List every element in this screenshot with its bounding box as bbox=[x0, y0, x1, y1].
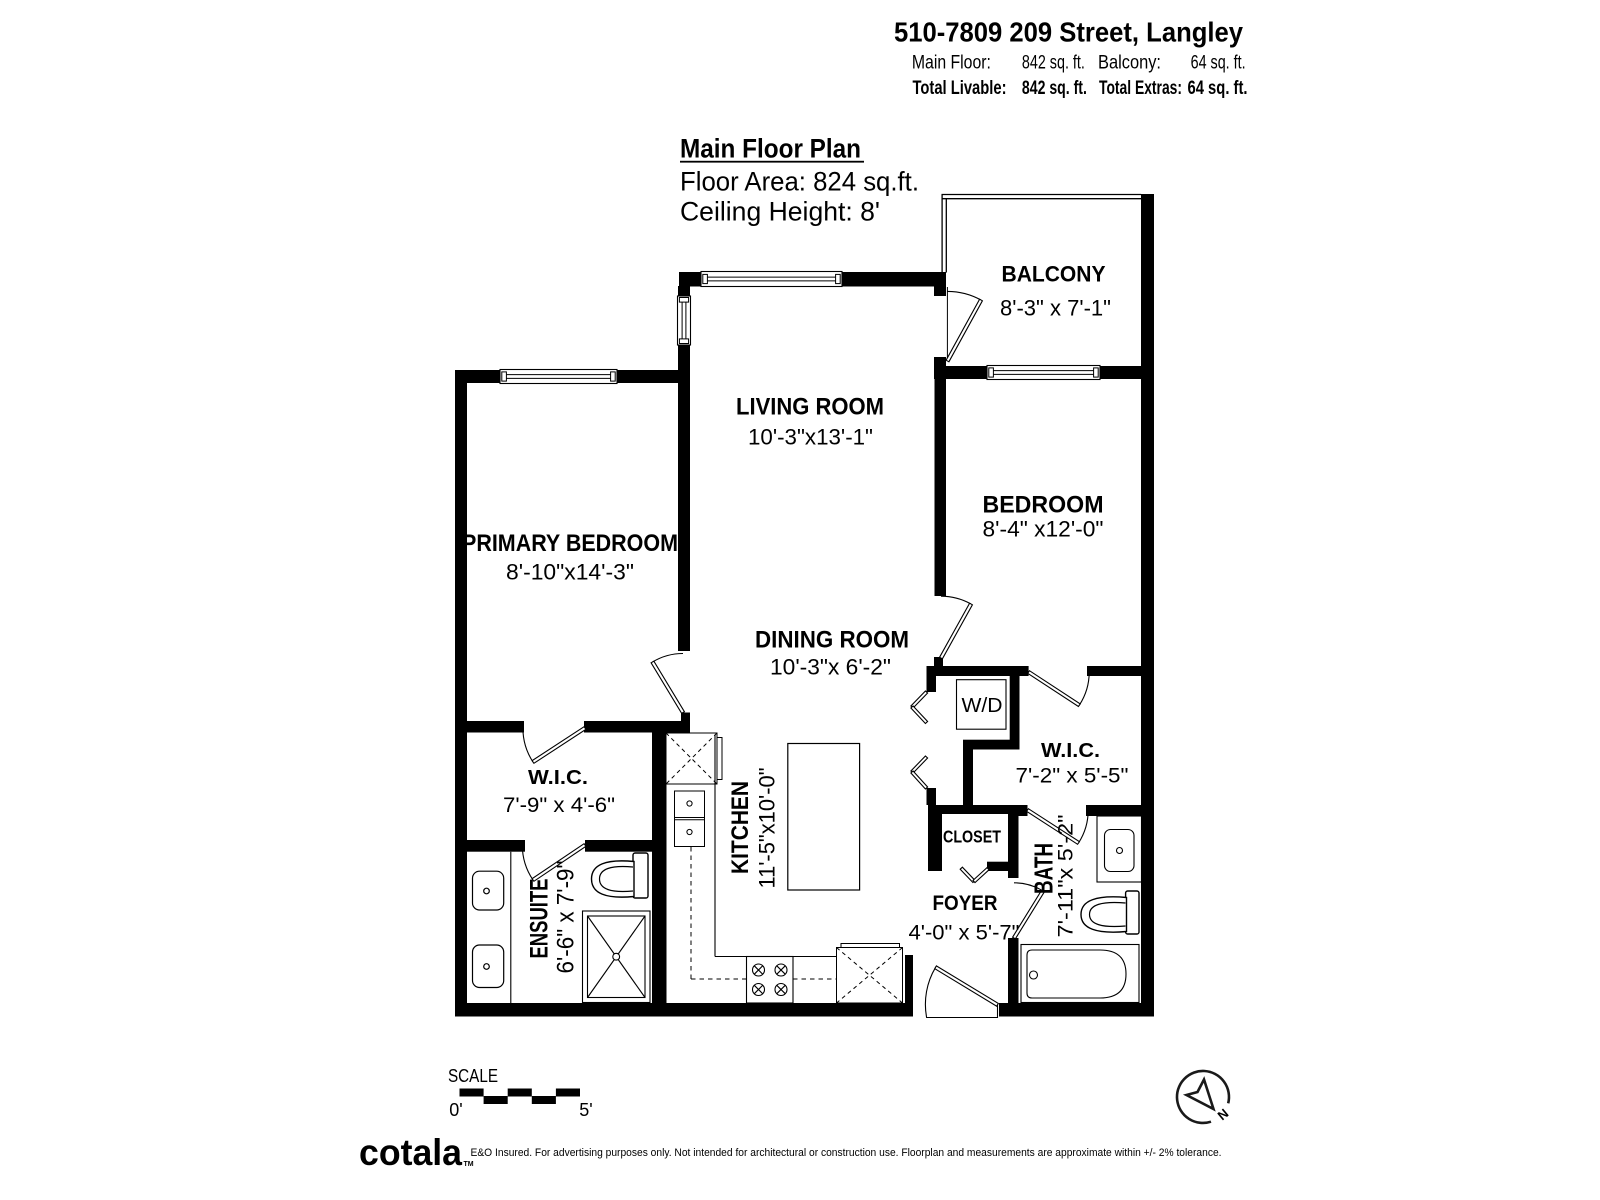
svg-text:Main Floor Plan: Main Floor Plan bbox=[680, 134, 861, 164]
svg-text:KITCHEN: KITCHEN bbox=[727, 781, 754, 874]
svg-text:ENSUITE: ENSUITE bbox=[526, 879, 554, 959]
svg-text:Balcony:: Balcony: bbox=[1098, 53, 1161, 74]
svg-text:FOYER: FOYER bbox=[933, 891, 998, 915]
svg-text:CLOSET: CLOSET bbox=[943, 827, 1001, 847]
svg-text:Main Floor:: Main Floor: bbox=[912, 53, 991, 74]
svg-text:E&O Insured. For advertising p: E&O Insured. For advertising purposes on… bbox=[471, 1147, 1222, 1159]
svg-text:LIVING ROOM: LIVING ROOM bbox=[736, 394, 884, 421]
svg-text:5': 5' bbox=[579, 1100, 592, 1120]
svg-text:BEDROOM: BEDROOM bbox=[983, 492, 1104, 519]
svg-text:BALCONY: BALCONY bbox=[1002, 262, 1106, 287]
svg-text:SCALE: SCALE bbox=[448, 1066, 498, 1086]
svg-text:510-7809 209 Street, Langley: 510-7809 209 Street, Langley bbox=[894, 17, 1243, 48]
svg-text:842 sq. ft.: 842 sq. ft. bbox=[1022, 78, 1087, 99]
svg-text:W.I.C.: W.I.C. bbox=[1041, 740, 1100, 762]
svg-text:11'-5"x10'-0": 11'-5"x10'-0" bbox=[755, 768, 780, 889]
svg-text:7'-11"x 5'-2": 7'-11"x 5'-2" bbox=[1055, 815, 1078, 938]
svg-text:cotala: cotala bbox=[359, 1132, 462, 1173]
svg-text:W/D: W/D bbox=[962, 695, 1003, 717]
svg-text:N: N bbox=[1215, 1106, 1232, 1124]
svg-text:6'-6" x 7'-9": 6'-6" x 7'-9" bbox=[553, 861, 580, 974]
svg-text:10'-3"x 6'-2": 10'-3"x 6'-2" bbox=[770, 655, 891, 680]
svg-text:Ceiling Height: 8': Ceiling Height: 8' bbox=[680, 197, 880, 227]
svg-text:Total Livable:: Total Livable: bbox=[913, 78, 1007, 99]
svg-text:8'-3" x 7'-1": 8'-3" x 7'-1" bbox=[1000, 296, 1111, 321]
svg-text:64 sq. ft.: 64 sq. ft. bbox=[1191, 53, 1246, 74]
svg-text:0': 0' bbox=[449, 1100, 462, 1120]
svg-text:8'-10"x14'-3": 8'-10"x14'-3" bbox=[506, 560, 634, 585]
svg-text:TM: TM bbox=[464, 1161, 474, 1168]
svg-text:4'-0" x 5'-7": 4'-0" x 5'-7" bbox=[909, 922, 1020, 945]
svg-text:W.I.C.: W.I.C. bbox=[528, 767, 588, 789]
svg-text:10'-3"x13'-1": 10'-3"x13'-1" bbox=[748, 425, 873, 450]
svg-text:DINING ROOM: DINING ROOM bbox=[755, 627, 909, 654]
svg-text:842 sq. ft.: 842 sq. ft. bbox=[1022, 53, 1085, 74]
svg-text:7'-2" x 5'-5": 7'-2" x 5'-5" bbox=[1016, 765, 1129, 788]
svg-text:64 sq. ft.: 64 sq. ft. bbox=[1188, 78, 1248, 99]
svg-text:PRIMARY BEDROOM: PRIMARY BEDROOM bbox=[462, 530, 678, 557]
svg-text:Floor Area: 824 sq.ft.: Floor Area: 824 sq.ft. bbox=[680, 167, 919, 197]
svg-text:7'-9" x 4'-6": 7'-9" x 4'-6" bbox=[503, 794, 615, 817]
svg-text:8'-4" x12'-0": 8'-4" x12'-0" bbox=[983, 517, 1104, 542]
svg-text:Total Extras:: Total Extras: bbox=[1099, 78, 1182, 99]
